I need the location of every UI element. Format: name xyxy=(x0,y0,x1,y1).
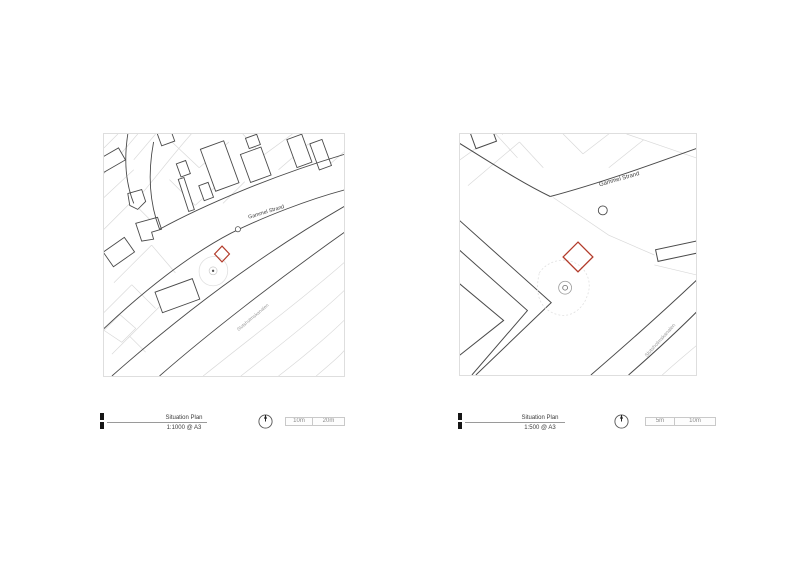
block-layer xyxy=(460,217,551,375)
title-rule xyxy=(465,422,565,423)
buildings-layer xyxy=(465,134,696,261)
title-block-500: Situation Plan 1:500 @ A3 5m 10m xyxy=(458,408,720,442)
scale-bar-segment: 10m xyxy=(675,417,716,426)
fountain-dot xyxy=(563,285,568,290)
canal-layer xyxy=(591,279,696,375)
circle-marker xyxy=(598,206,607,215)
situation-map-1000: Gammel Strand Slotsholmskanalen xyxy=(104,134,344,376)
title-rule xyxy=(107,422,207,423)
situation-map-500: Gammel Strand Slotsholmskanalen xyxy=(460,134,696,375)
circle-marker xyxy=(235,227,240,232)
site-marker-diamond xyxy=(215,246,230,262)
title-block-1000: Situation Plan 1:1000 @ A3 10m 20m xyxy=(100,408,350,442)
north-arrow-icon xyxy=(614,414,629,429)
site-marker-diamond xyxy=(563,242,593,272)
street-label: Gammel Strand xyxy=(599,171,641,188)
scale-bar-segment: 10m xyxy=(285,417,313,426)
scale-bar-segment: 5m xyxy=(645,417,675,426)
drawing-sheet: Gammel Strand Slotsholmskanalen xyxy=(0,0,800,565)
water-contours-layer xyxy=(662,344,696,375)
drawing-scale: 1:500 @ A3 xyxy=(480,425,600,432)
map-frame-500: Gammel Strand Slotsholmskanalen xyxy=(459,133,697,376)
map-frame-1000: Gammel Strand Slotsholmskanalen xyxy=(103,133,345,377)
drawing-title: Situation Plan xyxy=(124,415,244,422)
street-label: Gammel Strand xyxy=(248,204,286,221)
water-contours-layer xyxy=(203,261,344,376)
north-arrow-icon xyxy=(258,414,273,429)
buildings-layer xyxy=(104,134,331,313)
canal-label: Slotsholmskanalen xyxy=(644,322,677,358)
drawing-title: Situation Plan xyxy=(480,415,600,422)
scale-bar-segment: 20m xyxy=(313,417,345,426)
drawing-scale: 1:1000 @ A3 xyxy=(124,425,244,432)
scale-bar: 5m 10m xyxy=(645,417,716,426)
canal-label: Slotsholmskanalen xyxy=(236,302,271,332)
registration-mark-icon xyxy=(458,413,462,429)
registration-mark-icon xyxy=(100,413,104,429)
scale-bar: 10m 20m xyxy=(285,417,345,426)
fountain-dot xyxy=(212,270,214,272)
